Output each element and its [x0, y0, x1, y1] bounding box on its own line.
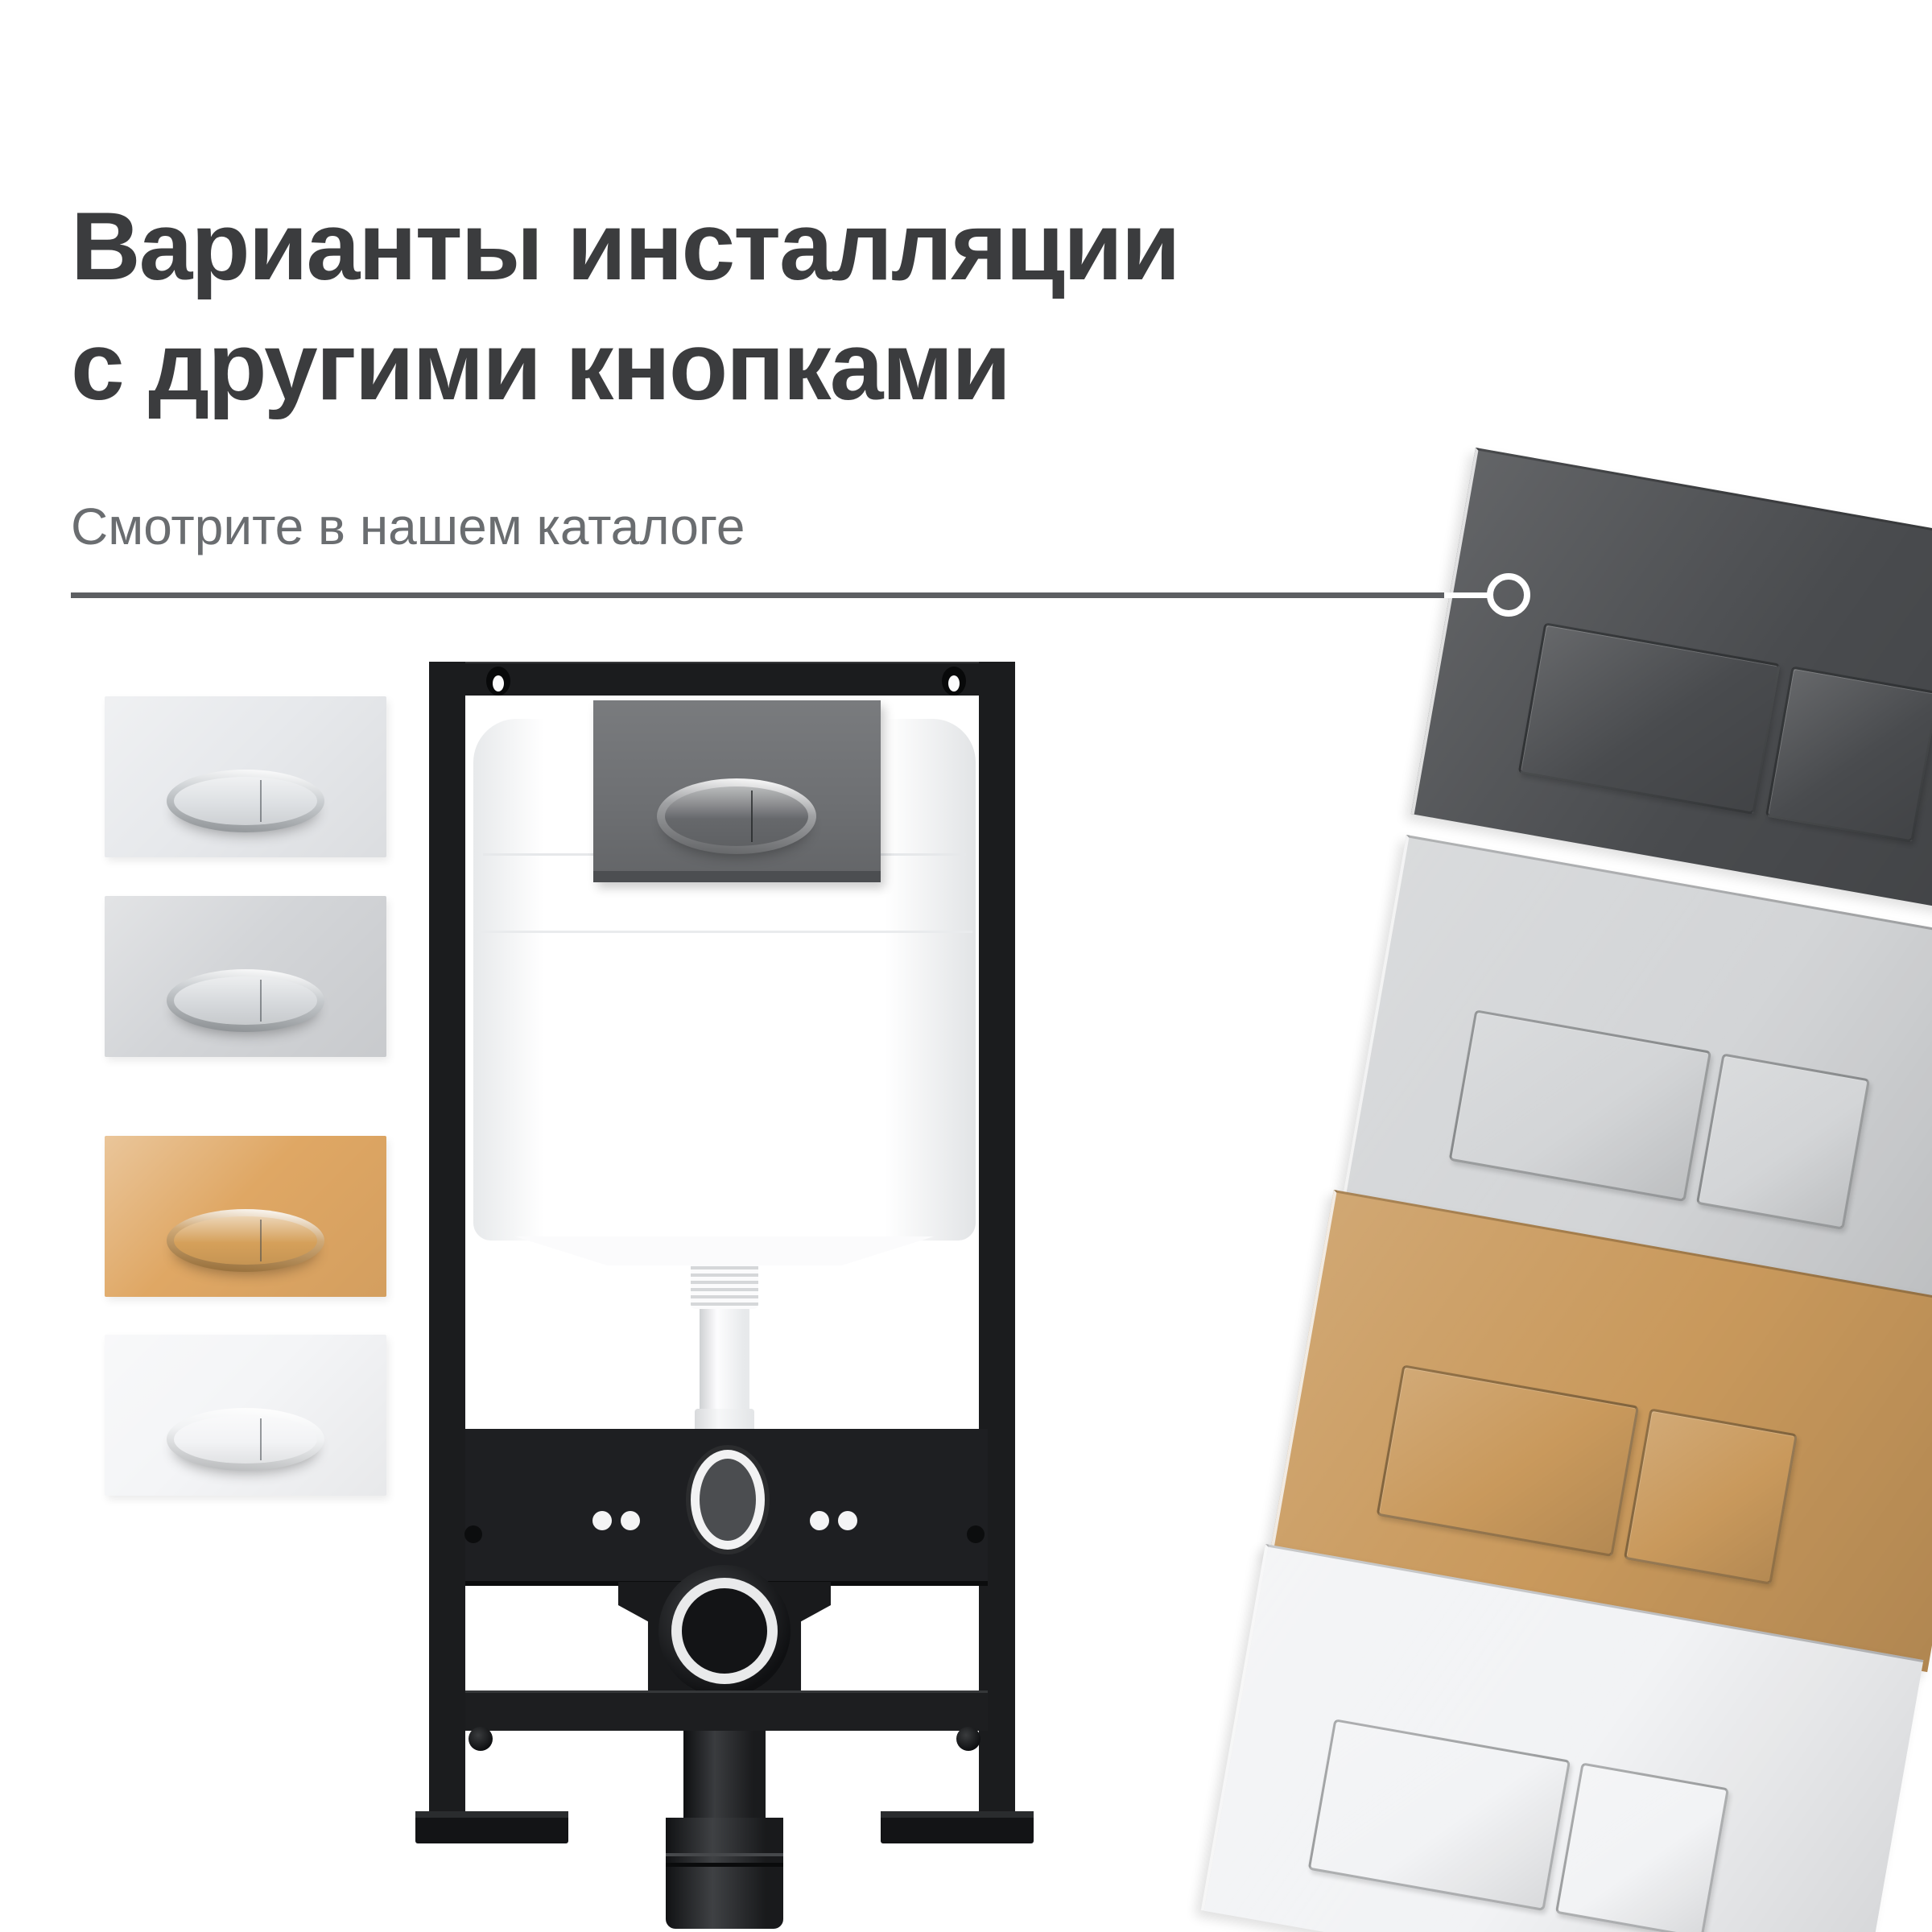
tank-seam [477, 931, 972, 933]
drain-pipe-coupling [666, 1818, 783, 1929]
oval-flush-button [167, 770, 324, 832]
small-flush-button [1696, 1053, 1870, 1229]
flush-plate-white [105, 1335, 386, 1496]
frame-right-foot-top [881, 1811, 1034, 1818]
fixing-hole [810, 1511, 829, 1530]
small-flush-button [1765, 666, 1932, 842]
oval-button-face [174, 976, 317, 1025]
oval-button-face [665, 786, 808, 846]
button-split-line [260, 1220, 262, 1261]
frame-right-leg [979, 662, 1015, 1821]
callout-line-highlight [1444, 592, 1489, 598]
oval-button-face [174, 1415, 317, 1463]
callout-circle-icon [1487, 573, 1530, 617]
drain-elbow-gasket [671, 1578, 778, 1684]
page-title-line2: с другими кнопками [71, 307, 1179, 427]
button-split-line [260, 980, 262, 1022]
page-title-line1: Варианты инсталляции [71, 187, 1179, 307]
callout-line [71, 592, 1444, 598]
frame-left-leg [429, 662, 465, 1821]
button-split-line [260, 780, 262, 822]
oval-flush-button [167, 1408, 324, 1471]
big-flush-button [1308, 1719, 1571, 1911]
button-split-line [260, 1418, 262, 1460]
drain-pipe [683, 1729, 766, 1819]
foot-adjust-bolt [469, 1727, 493, 1751]
fixing-hole [621, 1511, 640, 1530]
button-split-line [751, 791, 753, 842]
page-title: Варианты инсталляции с другими кнопками [71, 187, 1179, 427]
frame-left-foot-top [415, 1811, 568, 1818]
inspection-port [691, 1450, 765, 1550]
tank-outlet-funnel [515, 1236, 934, 1265]
flush-plate-chrome-light [105, 696, 386, 857]
coupling-ridge [666, 1853, 783, 1856]
fixing-hole [838, 1511, 857, 1530]
frame-side-bolt [464, 1525, 482, 1543]
fixing-hole [592, 1511, 612, 1530]
mounting-hole [942, 667, 966, 696]
mounted-flush-plate-gray [593, 700, 881, 882]
oval-flush-button [657, 778, 816, 854]
page-subtitle: Смотрите в нашем каталоге [71, 497, 745, 555]
frame-side-bolt [967, 1525, 985, 1543]
small-flush-button [1624, 1408, 1798, 1584]
oval-button-face [174, 777, 317, 825]
flush-pipe-thread [691, 1262, 758, 1309]
oval-flush-button [167, 1209, 324, 1272]
coupling-ridge [666, 1863, 783, 1867]
oval-button-face [174, 1216, 317, 1265]
frame-top-bar [429, 662, 1015, 696]
oval-flush-button [167, 969, 324, 1032]
mounting-hole [486, 667, 510, 696]
flush-plate-gold [105, 1136, 386, 1297]
foot-adjust-bolt [956, 1727, 980, 1751]
flush-plate-chrome-gray [105, 896, 386, 1057]
plate-bottom-edge [593, 871, 881, 882]
product-infographic: Варианты инсталляции с другими кнопками … [0, 0, 1932, 1932]
frame-lower-crossbar [465, 1690, 988, 1731]
big-flush-button [1449, 1009, 1711, 1202]
big-flush-button [1377, 1364, 1639, 1557]
small-flush-button [1555, 1762, 1729, 1932]
big-flush-button [1518, 622, 1781, 815]
